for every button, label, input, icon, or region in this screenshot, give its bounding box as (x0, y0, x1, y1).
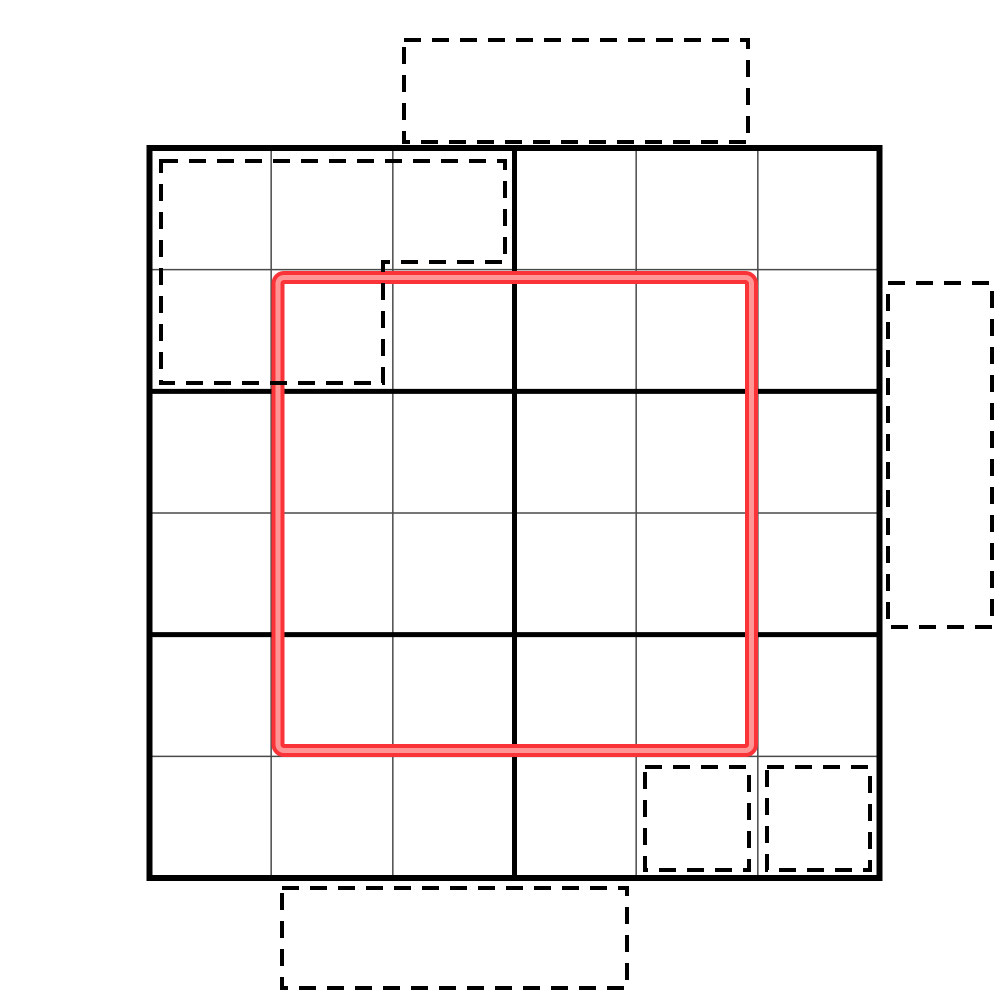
tray-bottom[interactable] (282, 888, 627, 988)
tray-top[interactable] (404, 40, 748, 142)
tray-right[interactable] (888, 283, 992, 627)
puzzle-canvas (0, 0, 1000, 1000)
puzzle-root (0, 0, 1000, 1000)
